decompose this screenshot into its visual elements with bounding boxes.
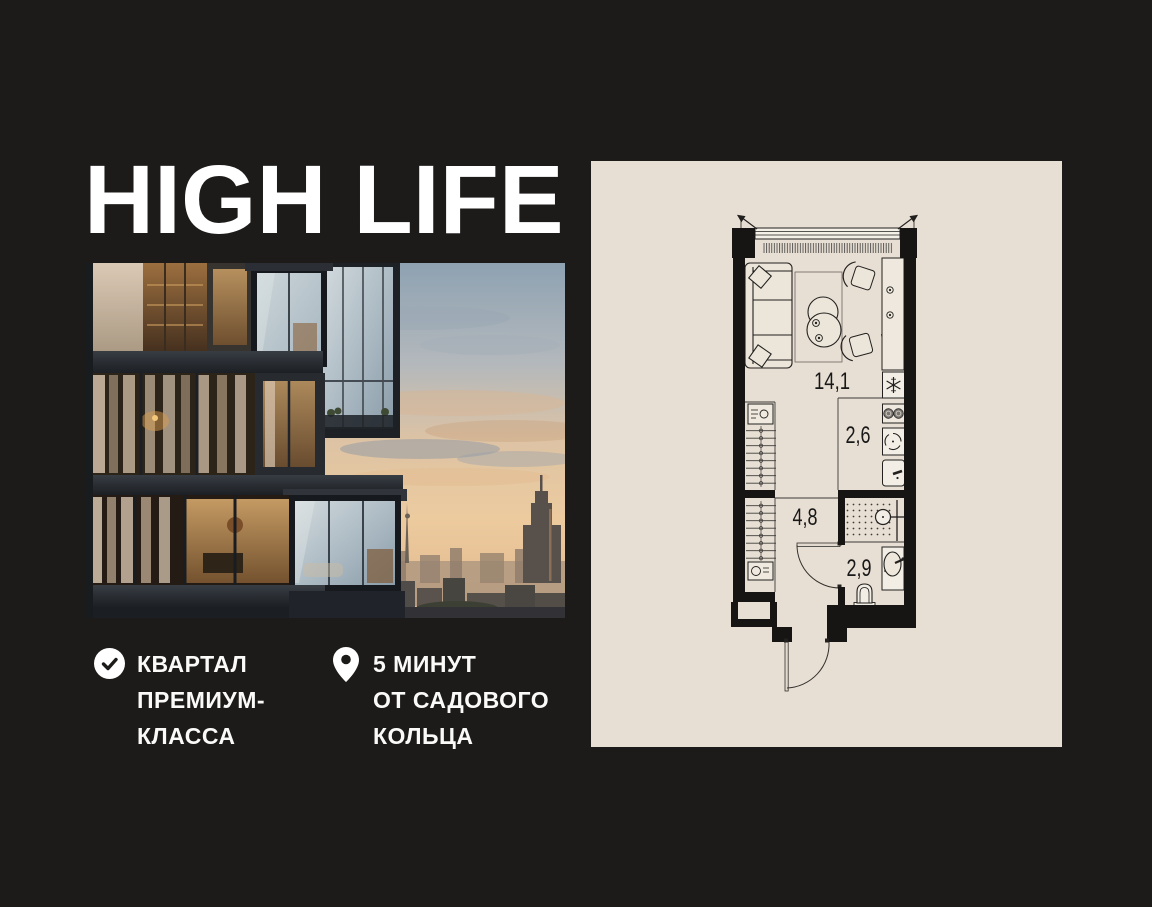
floor-plan: 14,1 2,6 4,8 2,9 <box>591 161 1062 747</box>
feature-premium: КВАРТАЛ ПРЕМИУМ- КЛАССА <box>137 646 265 754</box>
room-area-bathroom: 2,9 <box>847 555 872 582</box>
ad-banner: HIGH LIFE <box>0 0 1152 907</box>
washer-icon <box>883 460 905 486</box>
feature-line: КЛАССА <box>137 718 265 754</box>
feature-line: ПРЕМИУМ- <box>137 682 265 718</box>
wardrobe-upper <box>744 404 778 487</box>
feature-line: КОЛЬЦА <box>373 718 549 754</box>
feature-line: 5 МИНУТ <box>373 646 549 682</box>
fridge-icon <box>883 372 905 398</box>
coffee-tables <box>807 297 841 347</box>
chair-2 <box>838 330 874 363</box>
room-area-hallway: 4,8 <box>793 504 818 531</box>
room-area-living: 14,1 <box>814 368 850 395</box>
wardrobe-lower <box>744 501 778 580</box>
feature-line: КВАРТАЛ <box>137 646 265 682</box>
kitchen-counter <box>882 258 904 370</box>
room-area-kitchen: 2,6 <box>846 422 871 449</box>
building-photo <box>85 263 565 618</box>
feature-location: 5 МИНУТ ОТ САДОВОГО КОЛЬЦА <box>373 646 549 754</box>
radiator <box>763 243 893 253</box>
sofa <box>745 263 792 368</box>
dimension-arrows <box>738 216 917 230</box>
feature-line: ОТ САДОВОГО <box>373 682 549 718</box>
wall-niche <box>738 602 770 619</box>
floor-plan-panel: 14,1 2,6 4,8 2,9 <box>591 161 1062 747</box>
bathroom-sink-icon <box>882 547 905 590</box>
bathroom-door <box>797 542 842 589</box>
check-circle-icon <box>94 648 125 679</box>
entrance-door <box>784 639 829 692</box>
location-pin-icon <box>332 646 360 683</box>
window <box>755 228 900 239</box>
stove-icon <box>883 404 905 423</box>
logo-highlife: HIGH LIFE <box>84 151 564 248</box>
chair-1 <box>840 259 877 293</box>
toilet-icon <box>854 584 875 607</box>
kitchen-sink-icon <box>882 428 904 455</box>
